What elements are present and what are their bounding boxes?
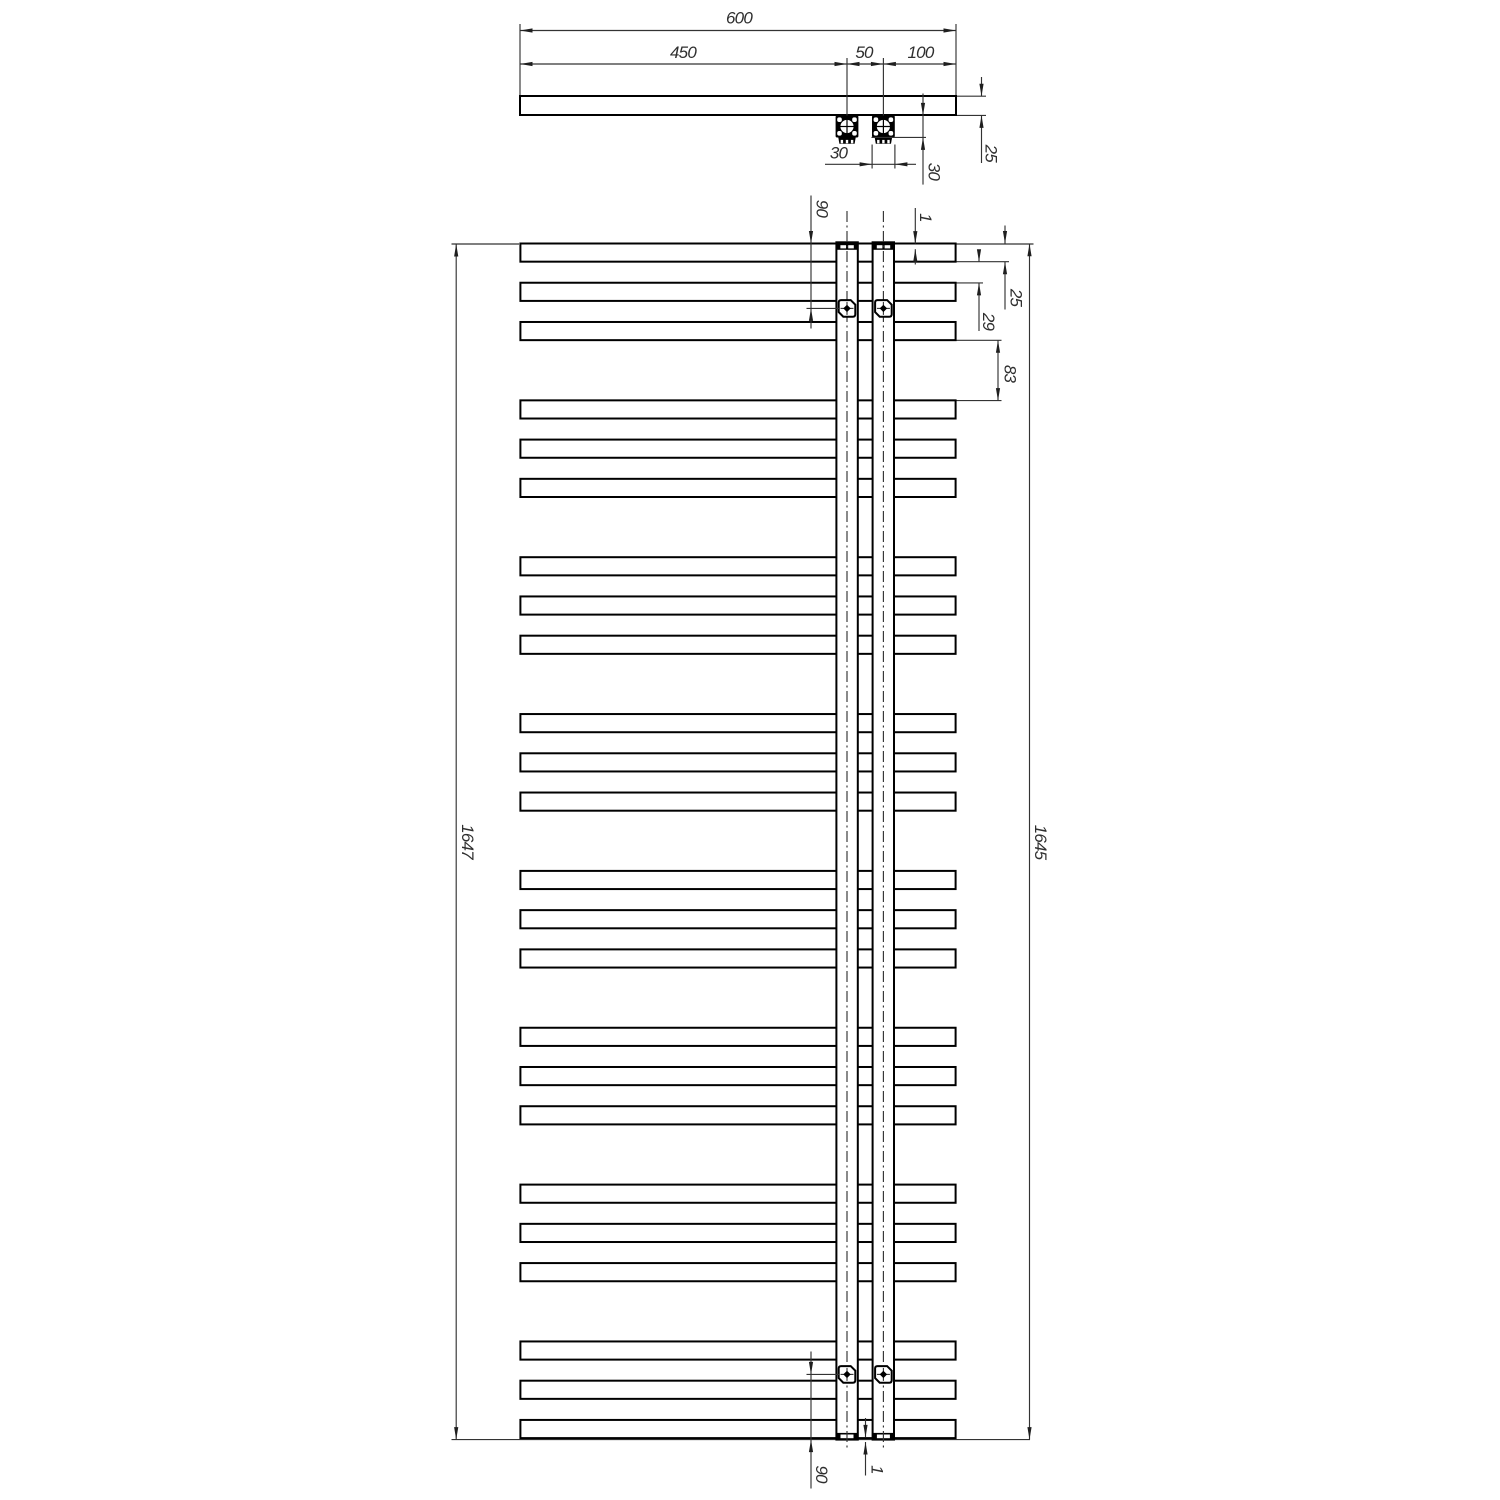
svg-text:90: 90	[812, 200, 831, 219]
svg-text:29: 29	[979, 312, 998, 332]
svg-text:30: 30	[924, 163, 943, 182]
svg-text:450: 450	[670, 43, 697, 62]
svg-text:600: 600	[726, 9, 753, 28]
svg-text:1647: 1647	[458, 824, 477, 860]
svg-text:83: 83	[1000, 365, 1019, 384]
svg-text:90: 90	[812, 1465, 831, 1484]
svg-text:1: 1	[916, 213, 935, 222]
svg-text:25: 25	[981, 144, 1000, 164]
svg-text:30: 30	[830, 143, 849, 162]
svg-text:1645: 1645	[1031, 825, 1050, 861]
svg-text:50: 50	[855, 43, 874, 62]
svg-text:100: 100	[908, 43, 935, 62]
svg-text:25: 25	[1007, 288, 1026, 308]
svg-text:1: 1	[867, 1465, 886, 1474]
